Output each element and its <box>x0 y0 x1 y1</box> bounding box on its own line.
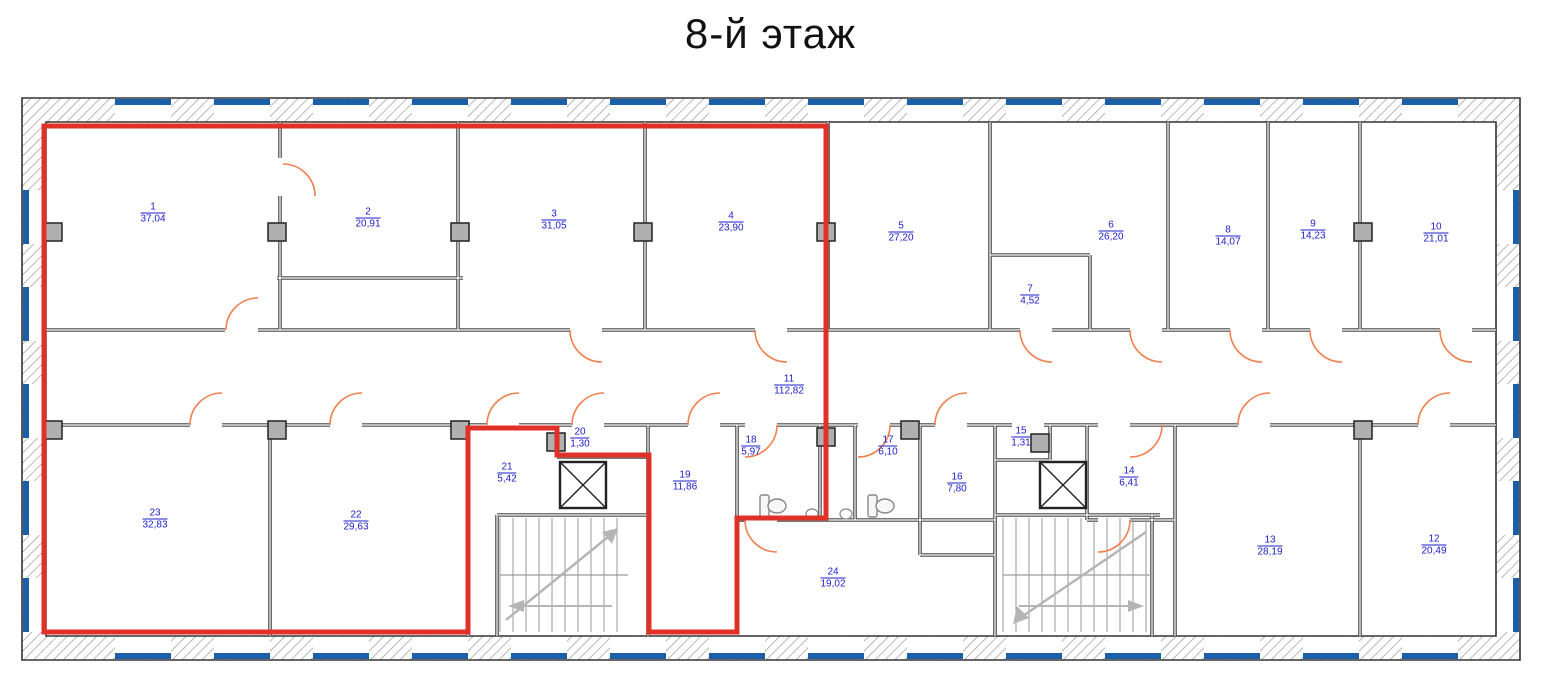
floor-plan-page: 8-й этаж 137,04220,91331,05423,90527,206… <box>0 0 1541 676</box>
highlight-outline <box>44 126 826 632</box>
partition-walls-inner <box>46 122 1496 636</box>
staircases <box>500 518 1152 632</box>
elevator-shafts <box>560 462 1086 508</box>
door-swings <box>190 164 1472 552</box>
columns <box>44 223 1372 452</box>
partition-walls <box>46 122 1496 636</box>
floor-plan-drawing <box>0 0 1541 676</box>
outer-wall <box>22 98 1520 660</box>
windows <box>23 99 1519 659</box>
